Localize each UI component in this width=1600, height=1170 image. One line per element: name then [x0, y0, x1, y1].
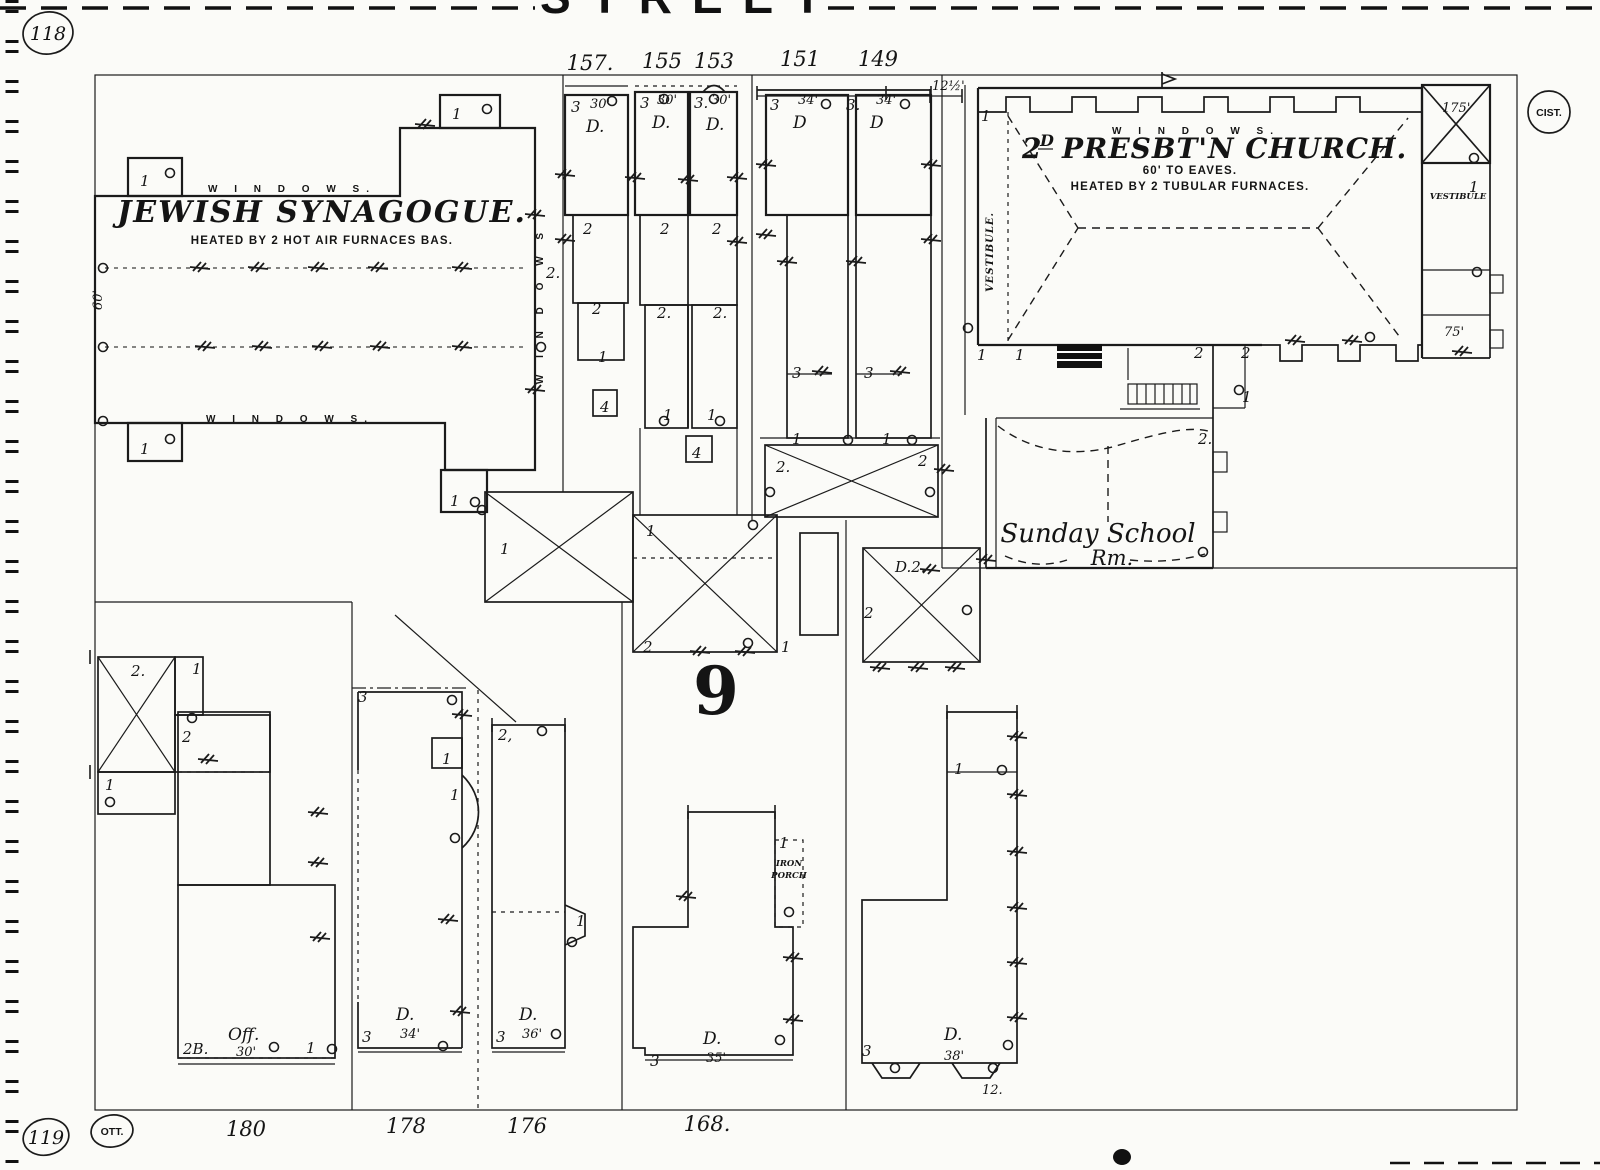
sanborn-fire-insurance-map: STREET 118 119 OTT. CIST.	[0, 0, 1600, 1170]
stories-168: 3	[650, 1052, 660, 1070]
depth-176: 36'	[522, 1027, 542, 1042]
story-label: 3	[792, 364, 802, 382]
story-label: 1	[306, 1039, 316, 1057]
story-label: 1	[707, 406, 717, 424]
iron-porch-label-2: PORCH	[770, 871, 808, 881]
stable-behind-151	[765, 445, 938, 517]
story-number-annotations: 22222.2.1114433112.211112.1121D.2.211122…	[105, 105, 1479, 1057]
sunday-school-label-1: Sunday School	[1000, 519, 1195, 549]
depth-right: 38'	[944, 1049, 964, 1064]
story-label: 1	[500, 540, 510, 558]
furnace-symbol	[1057, 344, 1102, 368]
depth-149: 34'	[876, 93, 896, 108]
church-rear-battlement	[1262, 345, 1422, 361]
stories-157: 3	[571, 98, 581, 116]
sunday-school-label-2: Rm.	[1090, 546, 1133, 570]
story-label: 4	[691, 444, 702, 462]
address-151: 151	[780, 47, 820, 71]
church-title-main: PRESBT'N CHURCH.	[1061, 132, 1407, 165]
stories-right: 3	[862, 1042, 872, 1060]
setback-dimension: 12½'	[930, 79, 965, 103]
annex-dimension: 75'	[1444, 325, 1464, 340]
story-label: 1	[1015, 346, 1025, 364]
central-outbuildings: 9	[478, 492, 997, 730]
bow-window-178	[462, 775, 479, 848]
address-155: 155	[642, 49, 682, 73]
windows-wall-label-top: W I N D O W S.	[208, 184, 376, 195]
story-label: 2.	[545, 264, 560, 282]
story-label: 2	[181, 728, 192, 746]
use-157: D.	[585, 117, 604, 137]
story-label: 2	[1240, 344, 1251, 362]
story-label: 1	[1469, 178, 1479, 196]
setback-label: 12½'	[932, 79, 965, 94]
story-label: 4	[599, 398, 610, 416]
depth-168: 35'	[706, 1051, 726, 1066]
story-label: 1	[981, 107, 991, 125]
stories-151: 3	[770, 96, 780, 114]
stories-155: 3	[640, 94, 650, 112]
story-label: 2	[1193, 344, 1204, 362]
use-176: D.	[518, 1005, 537, 1025]
windows-wall-label-right: W I N D O W S	[535, 226, 546, 384]
depth-151: 34'	[798, 93, 818, 108]
dwelling-151-wing	[787, 215, 848, 438]
stories-153: 3.	[694, 94, 708, 112]
address-157: 157.	[567, 51, 614, 75]
page-ref-top-left: 118	[20, 9, 75, 58]
page-ref-bottom-left: 119	[20, 1115, 72, 1160]
synagogue-depth-label: 60'	[91, 290, 106, 310]
story-label: 2.	[656, 304, 671, 322]
story-label: 1	[450, 492, 460, 510]
story-label: 1	[663, 406, 673, 424]
block-boundary	[95, 75, 1517, 1110]
story-label: 1	[1242, 388, 1252, 406]
cist-label: CIST.	[1536, 107, 1562, 119]
story-label: 2	[582, 220, 593, 238]
street-number-168: 168.	[684, 1112, 731, 1136]
story-label: 2.	[130, 662, 145, 680]
story-label: 2.	[1197, 430, 1212, 448]
church-title-d-sup: D	[1039, 131, 1054, 150]
synagogue-subtitle: HEATED BY 2 HOT AIR FURNACES BAS.	[191, 235, 453, 247]
dwelling-149-wing	[856, 215, 931, 438]
use-180: Off.	[228, 1025, 259, 1045]
stairs-symbol	[1120, 384, 1200, 409]
story-label: D.2.	[894, 558, 926, 576]
page-ref-118-label: 118	[30, 23, 66, 45]
vestibule-left-label: VESTIBULE.	[985, 212, 996, 292]
story-label: 2	[917, 452, 928, 470]
story-label: 1	[452, 105, 462, 123]
street-ref-ott: OTT.	[89, 1112, 135, 1150]
address-153: 153	[694, 49, 734, 73]
dwelling-178: 3 D. 34'	[358, 692, 479, 1052]
map-ink-dot	[1113, 1149, 1131, 1165]
use-178: D.	[395, 1005, 414, 1025]
dwelling-176: 3 D. 36'	[492, 718, 585, 1052]
story-label: 2	[711, 220, 722, 238]
dwelling-right: 3 D. 38' 12.	[862, 705, 1027, 1098]
dwelling-180: 2B. Off. 30'	[178, 712, 337, 1064]
church-front-battlement	[978, 72, 1422, 112]
story-label: 2	[642, 638, 653, 656]
building-jewish-synagogue: W I N D O W S. JEWISH SYNAGOGUE. HEATED …	[91, 95, 546, 512]
synagogue-porch-nw	[128, 158, 182, 196]
church-tower: 175'	[1422, 85, 1490, 163]
story-label: 2,	[497, 726, 512, 744]
depth-178: 34'	[400, 1027, 420, 1042]
story-label: 1	[576, 912, 586, 930]
sunday-school-room: Sunday School Rm.	[986, 345, 1227, 570]
block-number: 9	[693, 652, 739, 730]
stories-149: 3.	[846, 96, 860, 114]
bay-dimension: 12.	[982, 1083, 1003, 1098]
use-right: D.	[943, 1025, 962, 1045]
story-label: 1	[646, 522, 656, 540]
story-label: 1	[781, 638, 791, 656]
building-presbyterian-church: W I N D O W S. 2 D PRESBT'N CHURCH. 60' …	[930, 72, 1503, 570]
synagogue-title: JEWISH SYNAGOGUE.	[112, 195, 527, 230]
use-168: D.	[702, 1029, 721, 1049]
story-label: 1	[882, 430, 892, 448]
story-label: 2	[591, 300, 602, 318]
street-number-178: 178	[386, 1114, 426, 1138]
story-label: 2	[659, 220, 670, 238]
porch-151-149	[757, 86, 931, 100]
story-label: 2.	[775, 458, 790, 476]
story-label: 2	[863, 604, 874, 622]
windows-wall-label-bottom: W I N D O W S.	[206, 414, 374, 425]
story-label: 1	[779, 834, 789, 852]
use-151: D	[792, 113, 807, 133]
street-dashed-edge-top: STREET	[0, 0, 1600, 23]
story-label: 1	[140, 440, 150, 458]
depth-180: 30'	[236, 1045, 256, 1060]
street-name-label: STREET	[540, 0, 841, 23]
address-149: 149	[858, 47, 898, 71]
church-eaves-note: 60' TO EAVES.	[1143, 165, 1238, 177]
use-155: D.	[651, 113, 670, 133]
story-label: 1	[140, 172, 150, 190]
story-label: 1	[105, 776, 115, 794]
row-houses-157-149: 157. 155 153 151 149 3 30' D. 3 30' D. 3…	[555, 47, 954, 517]
church-heat-note: HEATED BY 2 TUBULAR FURNACES.	[1071, 181, 1310, 193]
story-label: 1	[598, 348, 608, 366]
stories-178: 3	[362, 1028, 372, 1046]
story-label: 3	[358, 688, 368, 706]
story-label: 1	[442, 750, 452, 768]
use-153: D.	[705, 115, 724, 135]
dwelling-149-front	[856, 95, 931, 215]
stories-180: 2B.	[182, 1040, 208, 1058]
use-149: D	[869, 113, 884, 133]
dwelling-157-rear1	[573, 215, 628, 303]
tower-dimension: 175'	[1442, 101, 1470, 116]
page-ref-119-label: 119	[28, 1127, 64, 1149]
story-label: 1	[954, 760, 964, 778]
ott-label: OTT.	[101, 1126, 124, 1138]
bottom-lots: 2B. Off. 30' 3 D. 34' 3 D. 36'	[90, 650, 1027, 1141]
street-number-176: 176	[507, 1114, 547, 1138]
shed-tall	[800, 533, 838, 635]
story-label: 1	[977, 346, 987, 364]
stories-176: 3	[496, 1028, 506, 1046]
window-hash-row-1	[105, 262, 528, 272]
street-number-180: 180	[226, 1117, 266, 1141]
story-label: 3	[864, 364, 874, 382]
stable-x-180	[90, 650, 270, 814]
story-label: 2.	[712, 304, 727, 322]
story-label: 1	[192, 660, 202, 678]
cistern-symbol: CIST.	[1528, 91, 1570, 133]
window-hash-row-2	[105, 341, 528, 351]
iron-porch-label-1: IRON	[775, 859, 803, 869]
story-label: 1	[450, 786, 460, 804]
story-label: 1	[792, 430, 802, 448]
